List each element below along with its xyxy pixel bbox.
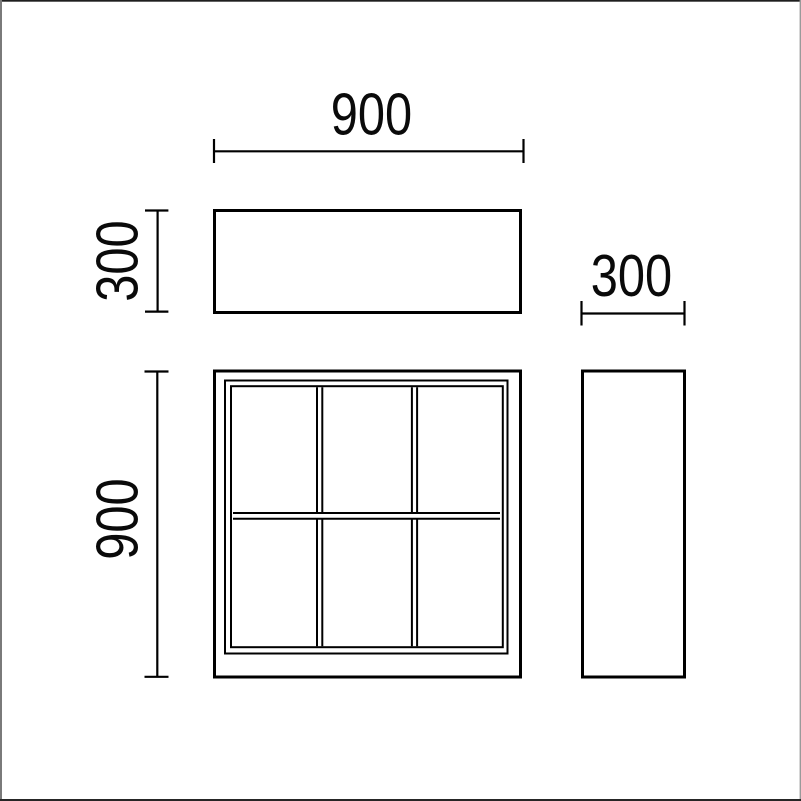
svg-text:900: 900 — [331, 81, 412, 148]
svg-text:300: 300 — [591, 242, 672, 309]
svg-text:300: 300 — [84, 220, 151, 301]
svg-text:900: 900 — [84, 478, 151, 559]
